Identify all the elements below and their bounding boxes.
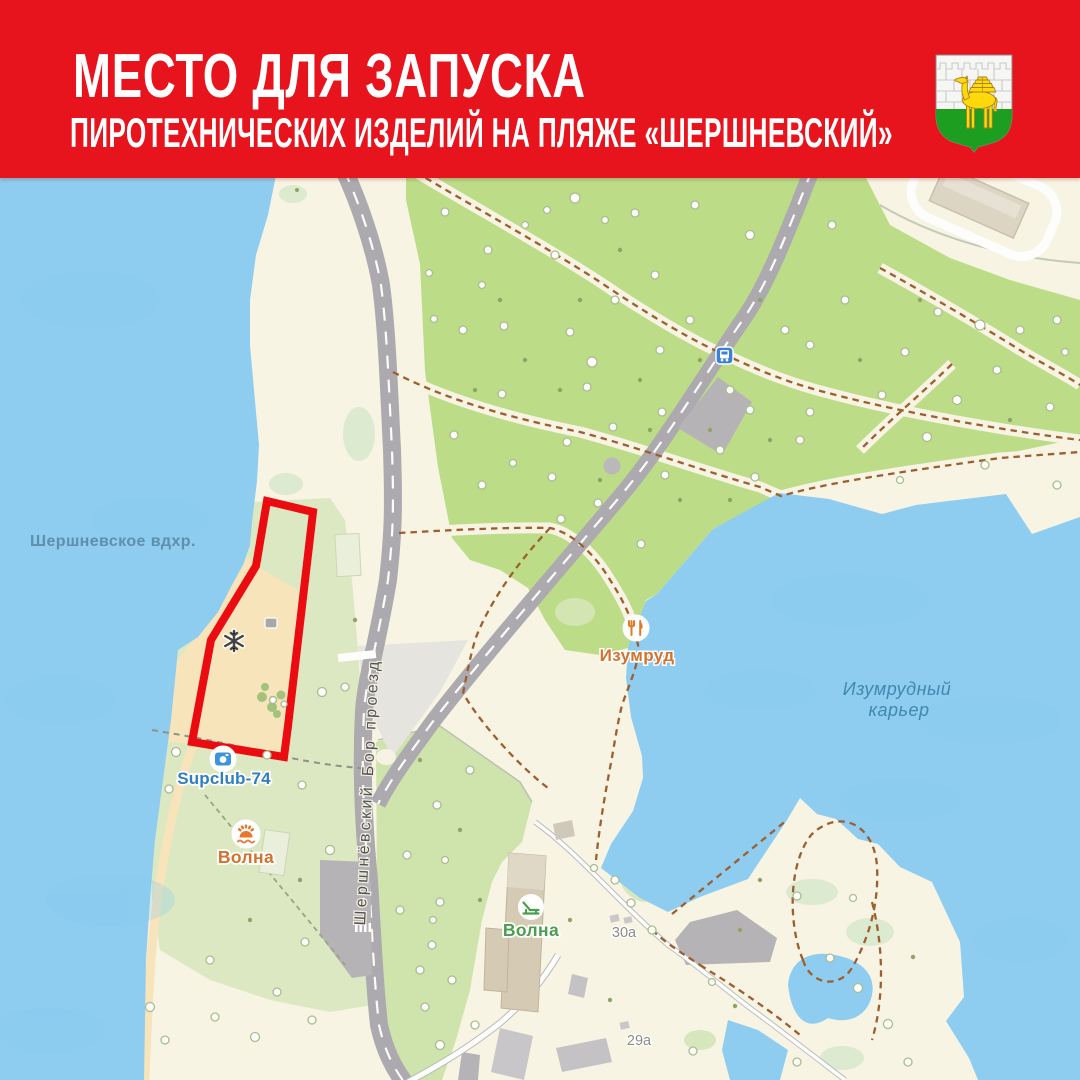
svg-text:Изумрудный: Изумрудный: [843, 679, 952, 699]
svg-text:карьер: карьер: [868, 700, 929, 720]
svg-text:29а: 29а: [627, 1033, 652, 1049]
svg-text:Волна: Волна: [218, 847, 274, 867]
svg-text:Изумруд: Изумруд: [600, 646, 675, 665]
svg-text:Шершневское вдхр.: Шершневское вдхр.: [30, 533, 196, 550]
svg-text:Supclub-74: Supclub-74: [177, 769, 271, 788]
svg-text:Волна: Волна: [503, 920, 559, 940]
svg-text:30а: 30а: [612, 925, 637, 941]
